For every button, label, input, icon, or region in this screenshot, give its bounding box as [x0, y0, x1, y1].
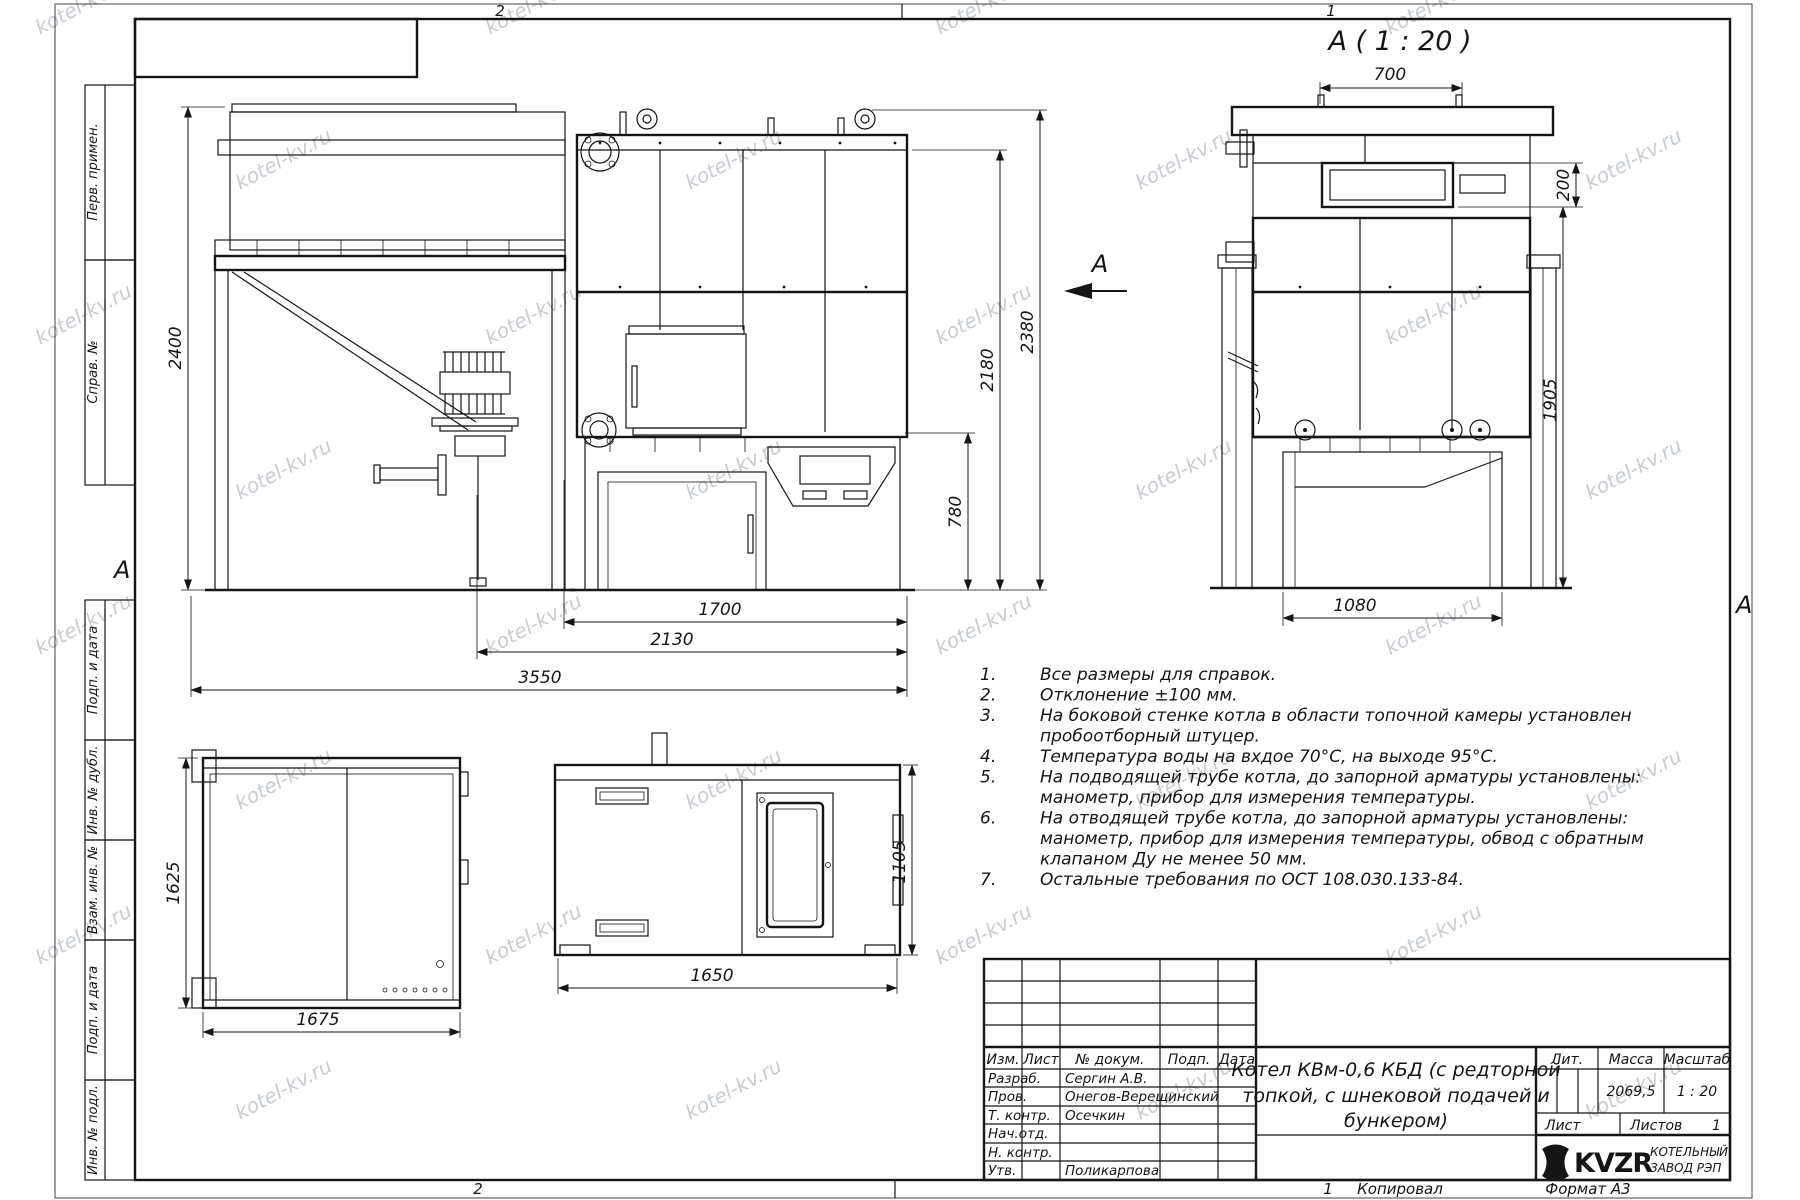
watermark-text: kotel-kv.ru	[231, 434, 336, 505]
zone-label-top-1: 1	[1326, 2, 1336, 20]
note-line: На подводящей трубе котла, до запорной а…	[1040, 768, 1641, 788]
zone-label-bottom-2: 2	[473, 1180, 483, 1198]
watermark-text: kotel-kv.ru	[481, 589, 586, 660]
zone-label-bottom-1: 1	[1323, 1180, 1333, 1198]
lifting-lug	[855, 109, 875, 129]
note-number-3: 3.	[980, 706, 996, 726]
boiler-door	[626, 326, 746, 435]
tb-role-name: Осечкин	[1065, 1108, 1125, 1124]
watermark-text: kotel-kv.ru	[681, 1054, 786, 1125]
watermark-text: kotel-kv.ru	[481, 899, 586, 970]
dim-1905: 1905	[1541, 378, 1561, 421]
watermark-text: kotel-kv.ru	[1381, 589, 1486, 660]
watermark-text: kotel-kv.ru	[31, 279, 136, 350]
watermark-text: kotel-kv.ru	[1131, 434, 1236, 505]
tb-scale-value: 1 : 20	[1677, 1084, 1717, 1100]
tb-header-list: Лист	[1022, 1052, 1059, 1068]
dim-2180: 2180	[978, 348, 998, 391]
tb-listov-value: 1	[1712, 1118, 1721, 1134]
stamp-label: Взам. инв. №	[86, 846, 101, 934]
stamp-box: Инв. № дубл.	[85, 740, 135, 840]
note-number-4: 4.	[980, 747, 996, 767]
watermark-text: kotel-kv.ru	[931, 589, 1036, 660]
tb-role-label: Утв.	[988, 1163, 1016, 1179]
stamp-label: Инв. № подл.	[86, 1085, 101, 1175]
lifting-lug	[637, 109, 657, 129]
notes-list: 1.Все размеры для справок.2.Отклонение ±…	[980, 665, 1644, 890]
view-direction-arrow: А	[1064, 250, 1127, 299]
note-number-6: 6.	[980, 809, 996, 829]
tb-scale-label: Масштаб	[1664, 1052, 1731, 1068]
dim-2400: 2400	[166, 326, 186, 369]
dim-2380: 2380	[1018, 310, 1038, 353]
watermark-text: kotel-kv.ru	[231, 1054, 336, 1125]
watermark-text: kotel-kv.ru	[1581, 124, 1686, 195]
dimensions-side: 2400 780 2180 2380 1700 2130 3550	[166, 107, 1047, 697]
view-front	[555, 733, 903, 955]
dim-3550: 3550	[518, 668, 561, 688]
title-block: Изм. Лист № докум. Подп. Дата Разраб. Се…	[984, 959, 1731, 1181]
zone-label-right-a: А	[1734, 591, 1752, 619]
dim-1080: 1080	[1333, 596, 1376, 616]
stamp-box: Подп. и дата	[85, 940, 135, 1080]
tb-header-podp: Подп.	[1168, 1052, 1210, 1068]
watermark-text: kotel-kv.ru	[1131, 124, 1236, 195]
note-line: На отводящей трубе котла, до запорной ар…	[1040, 809, 1628, 829]
view-a-title: А ( 1 : 20 )	[1326, 26, 1471, 57]
top-left-reference-box	[135, 19, 417, 77]
stamp-label: Справ. №	[86, 340, 101, 403]
watermark-text: kotel-kv.ru	[1581, 434, 1686, 505]
dim-1650: 1650	[690, 966, 733, 986]
dim-1675: 1675	[296, 1010, 339, 1030]
water-connection-flange	[581, 133, 619, 171]
watermark-text: kotel-kv.ru	[231, 124, 336, 195]
dim-780: 780	[946, 496, 966, 528]
drawing-svg: kotel-kv.rukotel-kv.rukotel-kv.rukotel-k…	[0, 0, 1800, 1200]
note-line: клапаном Ду не менее 50 мм.	[1040, 850, 1307, 870]
left-margin-stamps: Перв. примен. Справ. № Подп. и дата Инв.…	[85, 85, 135, 1180]
dim-1105: 1105	[890, 840, 910, 883]
zone-label-top-2: 2	[495, 2, 505, 20]
note-number-1: 1.	[980, 665, 996, 685]
screw-feeder	[374, 418, 518, 586]
note-number-7: 7.	[980, 870, 996, 890]
note-number-5: 5.	[980, 768, 996, 788]
watermark-text: kotel-kv.ru	[31, 0, 136, 39]
front-door	[757, 793, 833, 937]
watermark-text: kotel-kv.ru	[31, 899, 136, 970]
drawing-sheet: kotel-kv.rukotel-kv.rukotel-kv.rukotel-k…	[0, 0, 1800, 1200]
stamp-box: Инв. № подл.	[85, 1080, 135, 1180]
note-line: Отклонение ±100 мм.	[1040, 686, 1238, 706]
dim-2130: 2130	[650, 630, 693, 650]
dim-700: 700	[1374, 65, 1406, 85]
doc-title-line: топкой, с шнековой подачей и	[1242, 1085, 1549, 1107]
brand-line2: ЗАВОД РЭП	[1650, 1161, 1721, 1175]
zone-label-left-a: А	[112, 556, 130, 584]
stamp-label: Подп. и дата	[86, 966, 101, 1055]
tb-role-label: Разраб.	[988, 1071, 1041, 1087]
stamp-label: Инв. № дубл.	[86, 746, 101, 835]
tb-header-ndoc: № докум.	[1074, 1052, 1144, 1068]
water-connection-flange	[582, 413, 616, 447]
tb-mass-value: 2069,5	[1607, 1084, 1656, 1100]
note-line: Все размеры для справок.	[1040, 665, 1276, 685]
dim-1625: 1625	[164, 861, 184, 904]
stamp-label: Перв. примен.	[86, 123, 101, 221]
tb-role-label: Т. контр.	[988, 1108, 1051, 1124]
tb-list-label: Лист	[1544, 1118, 1581, 1134]
tb-header-izm: Изм.	[987, 1052, 1020, 1068]
tb-role-label: Н. контр.	[988, 1145, 1053, 1161]
tb-role-name: Поликарпова	[1065, 1163, 1159, 1179]
dim-1700: 1700	[698, 600, 741, 620]
dimensions-plan: 1625 1675	[164, 758, 460, 1038]
tb-role-name: Сергин А.В.	[1065, 1071, 1147, 1087]
dimensions-front: 1105 1650	[558, 765, 918, 994]
view-boiler-side	[570, 109, 915, 590]
brand-text: KVZR	[1574, 1148, 1653, 1179]
copied-label: Копировал	[1357, 1180, 1443, 1198]
note-line: манометр, прибор для измерения температу…	[1040, 829, 1644, 849]
brand-line1: КОТЕЛЬНЫЙ	[1650, 1144, 1728, 1159]
watermark-text: kotel-kv.ru	[231, 744, 336, 815]
tb-lit-label: Лит.	[1550, 1052, 1583, 1068]
watermark-text: kotel-kv.ru	[681, 434, 786, 505]
note-line: манометр, прибор для измерения температу…	[1040, 788, 1476, 808]
kvzr-logo: KVZR КОТЕЛЬНЫЙ ЗАВОД РЭП	[1542, 1144, 1728, 1181]
dim-200: 200	[1554, 169, 1574, 201]
format-label: Формат А3	[1545, 1180, 1630, 1198]
note-line: Остальные требования по ОСТ 108.030.133-…	[1040, 870, 1464, 890]
tb-role-label: Нач.отд.	[988, 1126, 1048, 1142]
view-plan	[192, 750, 468, 1008]
doc-title-line: Котел КВм-0,6 КБД (с редторной	[1231, 1059, 1560, 1081]
note-number-2: 2.	[980, 686, 996, 706]
doc-title-line: бункером)	[1344, 1110, 1448, 1132]
note-line: Температура воды на вхдое 70°С, на выход…	[1040, 747, 1498, 767]
stamp-box: Перв. примен.	[85, 85, 135, 260]
watermark-text: kotel-kv.ru	[481, 279, 586, 350]
note-line: На боковой стенке котла в области топочн…	[1040, 706, 1632, 726]
tb-role-label: Пров.	[988, 1089, 1027, 1105]
watermark-text: kotel-kv.ru	[31, 589, 136, 660]
tb-role-name: Онегов-Верещинский	[1065, 1089, 1219, 1105]
tb-mass-label: Масса	[1609, 1052, 1654, 1068]
watermark-text: kotel-kv.ru	[1381, 279, 1486, 350]
feeder-gearmotor	[440, 352, 510, 414]
view-arrow-label: А	[1090, 250, 1108, 278]
tb-listov-label: Листов	[1629, 1118, 1682, 1134]
note-line: пробоотборный штуцер.	[1040, 727, 1260, 747]
stamp-label: Подп. и дата	[86, 626, 101, 715]
dimensions-rear: 700 200 1905 1080	[1283, 65, 1583, 626]
